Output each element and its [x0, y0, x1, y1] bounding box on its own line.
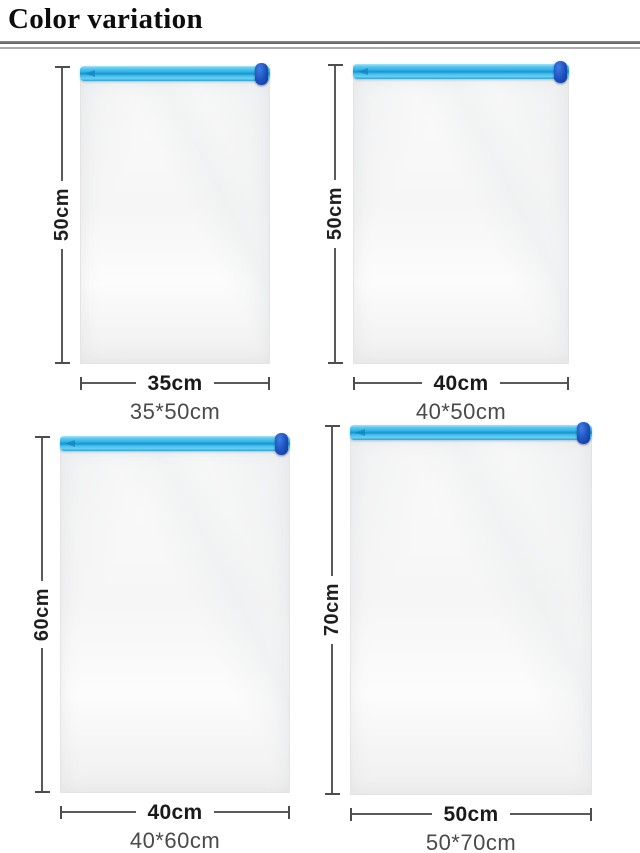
- bag-zipper-strip: [350, 425, 592, 440]
- dimension-cap: [55, 362, 70, 364]
- title-divider: [0, 41, 640, 49]
- zipper-notch-icon: [85, 70, 95, 77]
- dimension-line: [334, 248, 336, 362]
- zipper-slider-icon: [554, 61, 567, 83]
- height-dimension: 70cm: [314, 425, 350, 795]
- dimension-line: [331, 644, 333, 793]
- page-title: Color variation: [8, 3, 640, 36]
- header: Color variation: [0, 0, 640, 49]
- dimension-line: [214, 811, 288, 813]
- dimension-line: [510, 813, 590, 815]
- height-label: 50cm: [325, 187, 345, 240]
- height-dimension: 60cm: [24, 436, 60, 793]
- height-label: 50cm: [52, 188, 72, 241]
- dimension-line: [352, 813, 432, 815]
- bag-figure-40x60: 60cm 40cm 40*60cm: [24, 436, 290, 853]
- bag-body: [353, 77, 569, 364]
- dimension-line: [334, 66, 336, 180]
- bag-body: [350, 438, 592, 795]
- divider-light-line: [0, 47, 640, 49]
- vacuum-bag: [350, 425, 592, 795]
- height-label: 60cm: [32, 588, 52, 641]
- bag-zipper-strip: [353, 64, 569, 79]
- vacuum-bag: [353, 64, 569, 364]
- dimension-cap: [325, 793, 340, 795]
- dimension-line: [61, 68, 63, 181]
- dimension-cap: [268, 377, 270, 390]
- product-color-variation-image: Color variation 50cm: [0, 0, 640, 853]
- dimension-line: [62, 811, 136, 813]
- dimension-cap: [567, 377, 569, 390]
- vacuum-bag: [80, 66, 270, 364]
- bag-zipper-strip: [80, 66, 270, 81]
- zipper-notch-icon: [355, 429, 365, 436]
- dimension-cap: [590, 808, 592, 821]
- height-label: 70cm: [322, 583, 342, 636]
- zipper-notch-icon: [358, 68, 368, 75]
- dimension-line: [41, 438, 43, 581]
- width-label: 50cm: [432, 804, 511, 825]
- dimension-line: [82, 382, 136, 384]
- bag-figure-50x70: 70cm 50cm 50*70cm: [314, 425, 592, 853]
- width-label: 35cm: [136, 373, 215, 394]
- vacuum-bag: [60, 436, 290, 793]
- dimension-line: [355, 382, 422, 384]
- height-dimension: 50cm: [44, 66, 80, 364]
- size-caption: 35*50cm: [80, 399, 270, 425]
- bag-figure-40x50: 50cm 40cm 40*50cm: [317, 64, 569, 425]
- width-dimension: 40cm: [60, 799, 290, 825]
- zipper-slider-icon: [255, 63, 268, 85]
- zipper-slider-icon: [577, 422, 590, 444]
- dimension-cap: [35, 791, 50, 793]
- dimension-line: [331, 427, 333, 576]
- width-dimension: 35cm: [80, 370, 270, 396]
- dimension-line: [500, 382, 567, 384]
- bag-body: [60, 449, 290, 793]
- height-dimension: 50cm: [317, 64, 353, 364]
- dimension-line: [61, 249, 63, 362]
- width-label: 40cm: [422, 373, 501, 394]
- bag-body: [80, 79, 270, 364]
- zipper-notch-icon: [65, 440, 75, 447]
- size-caption: 40*60cm: [60, 828, 290, 853]
- dimension-line: [214, 382, 268, 384]
- dimension-line: [41, 648, 43, 791]
- bag-zipper-strip: [60, 436, 290, 451]
- width-dimension: 50cm: [350, 801, 592, 827]
- dimension-cap: [288, 806, 290, 819]
- size-caption: 40*50cm: [353, 399, 569, 425]
- size-caption: 50*70cm: [350, 830, 592, 853]
- bag-figure-35x50: 50cm 35cm 35*50cm: [44, 66, 270, 425]
- width-dimension: 40cm: [353, 370, 569, 396]
- dimension-cap: [328, 362, 343, 364]
- width-label: 40cm: [136, 802, 215, 823]
- zipper-slider-icon: [275, 433, 288, 455]
